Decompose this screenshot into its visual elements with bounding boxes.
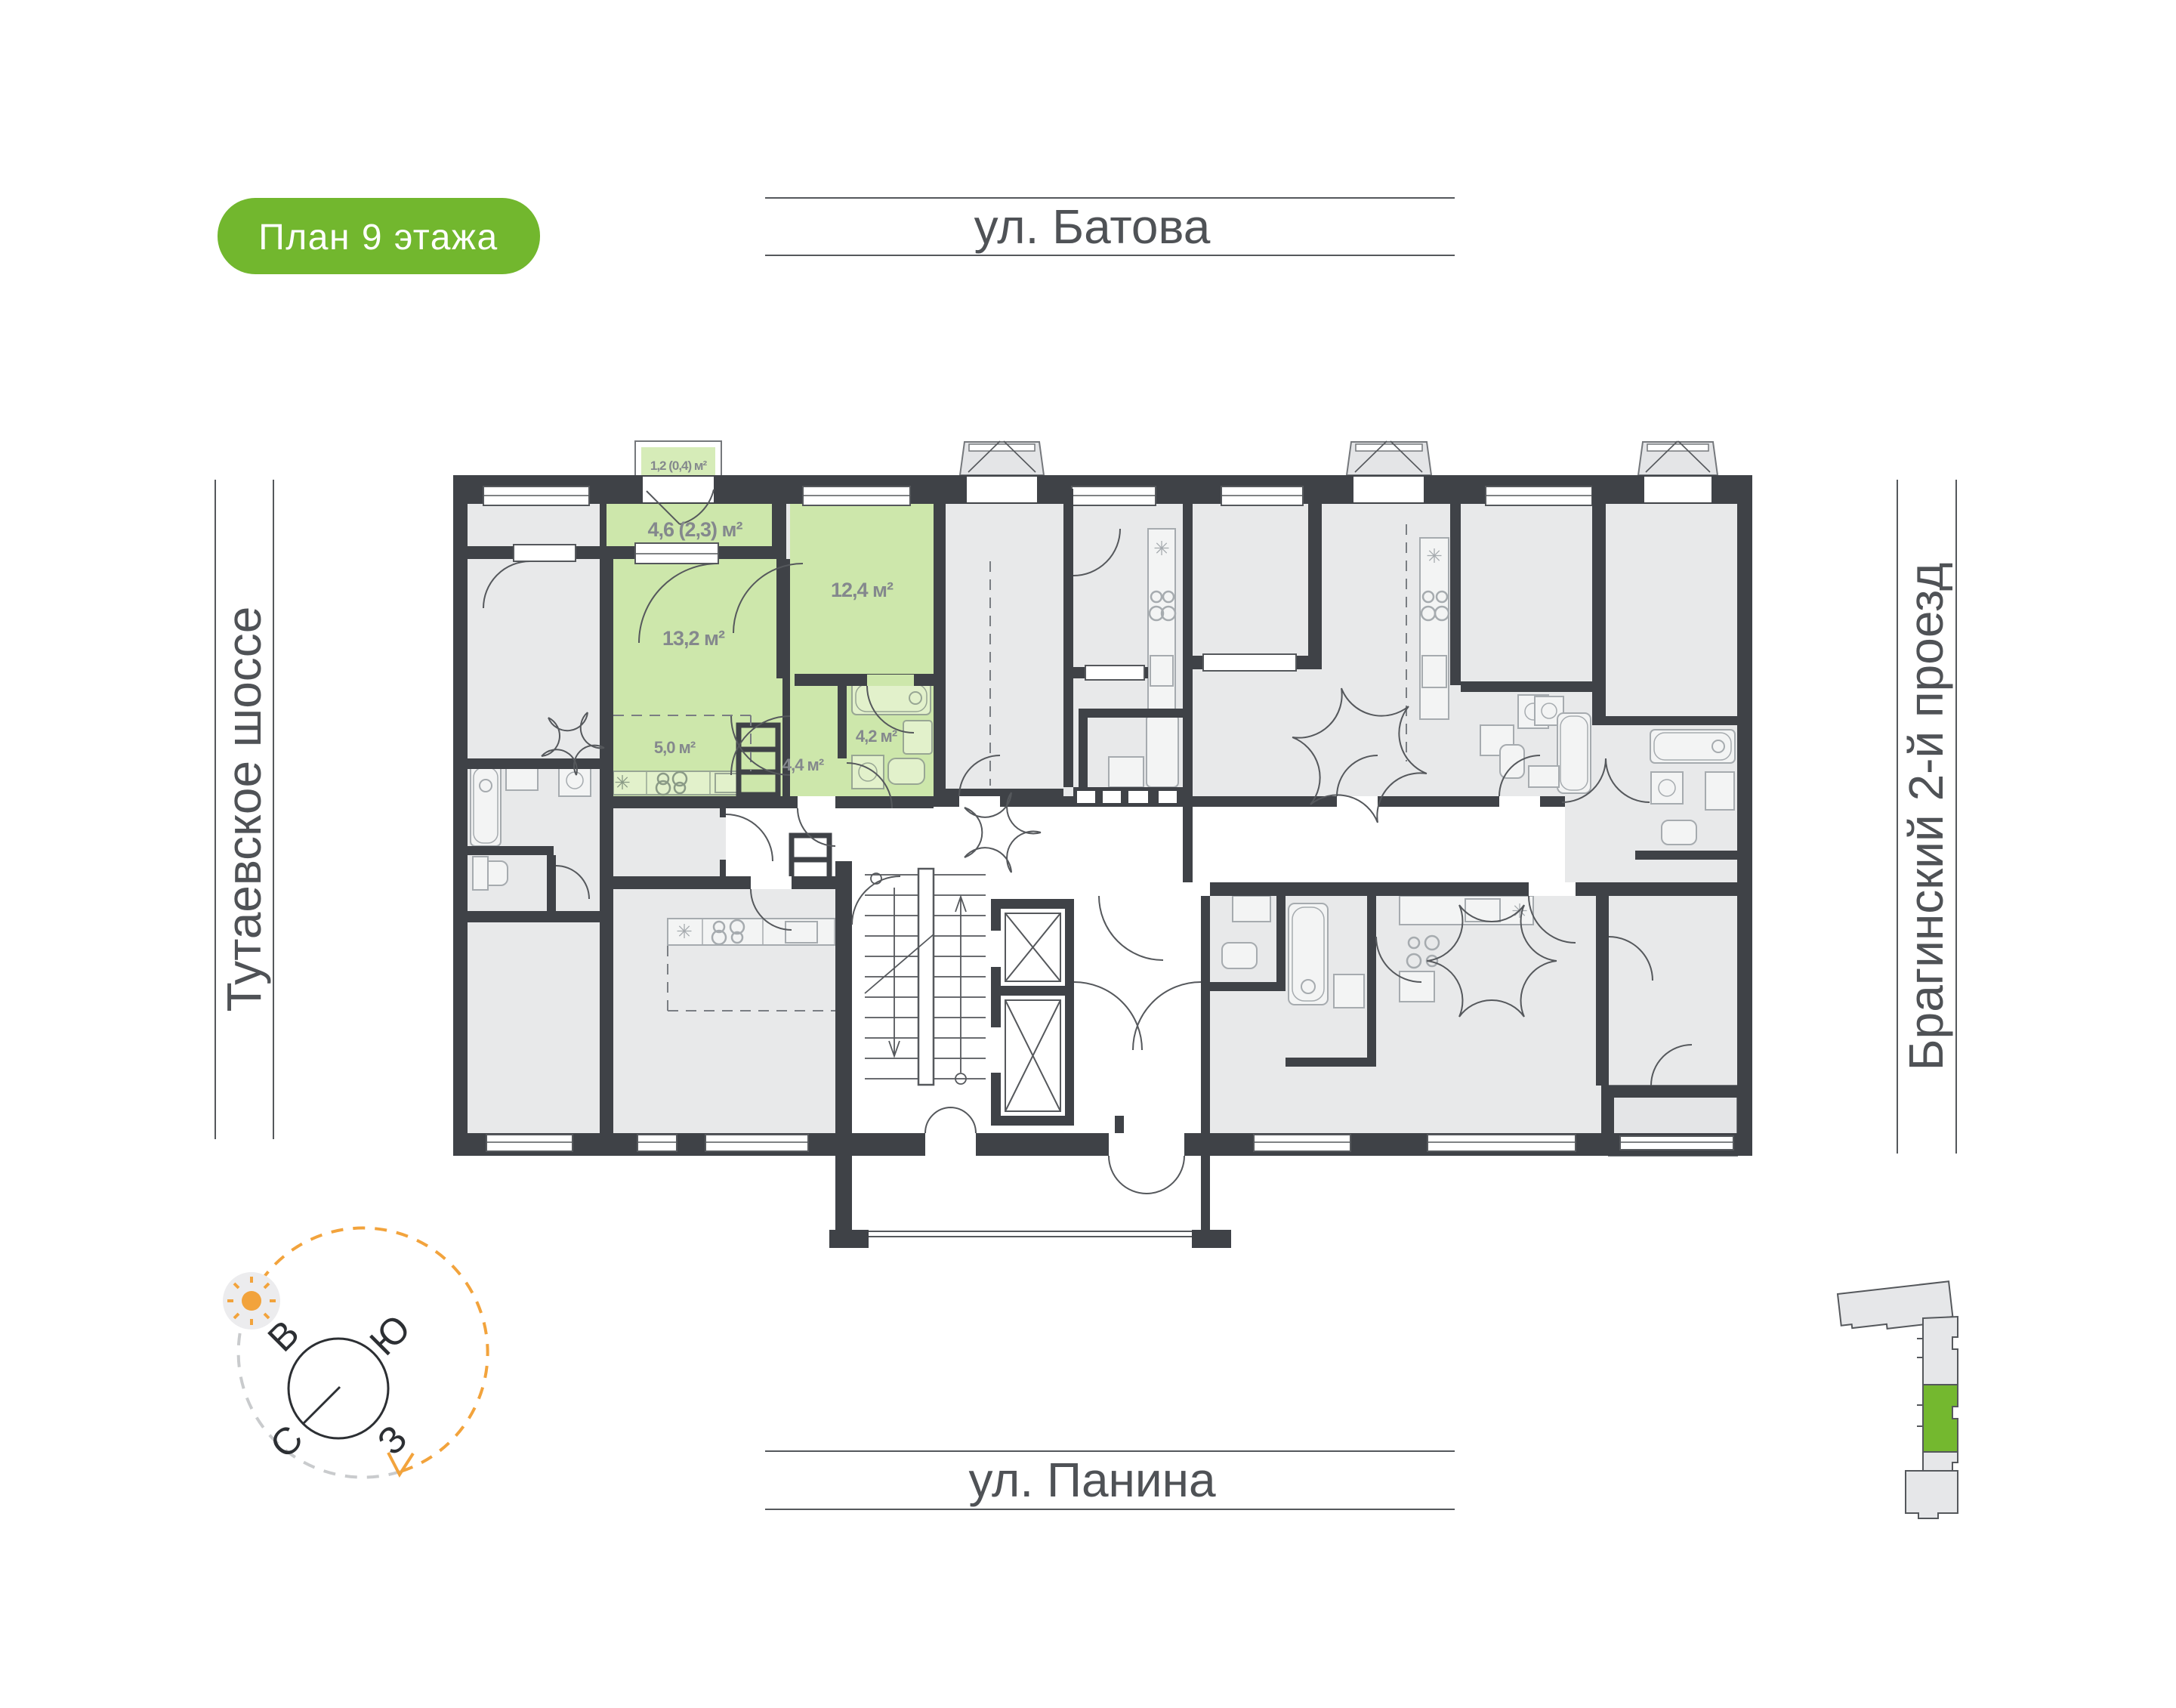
svg-text:✳: ✳ <box>1153 537 1170 560</box>
svg-text:5,0 м²: 5,0 м² <box>654 738 696 757</box>
svg-text:1,2 (0,4) м²: 1,2 (0,4) м² <box>650 459 708 473</box>
svg-text:12,4 м²: 12,4 м² <box>831 579 894 601</box>
svg-text:Брагинский 2-й проезд: Брагинский 2-й проезд <box>1899 563 1953 1071</box>
svg-text:✳: ✳ <box>1426 545 1443 567</box>
svg-text:4,2 м²: 4,2 м² <box>856 727 897 746</box>
svg-text:13,2 м²: 13,2 м² <box>662 627 725 650</box>
svg-text:✳: ✳ <box>676 920 693 943</box>
svg-text:4,6 (2,3) м²: 4,6 (2,3) м² <box>647 518 742 541</box>
svg-text:✳: ✳ <box>614 771 631 794</box>
svg-text:План 9 этажа: План 9 этажа <box>258 218 498 258</box>
svg-text:ул. Батова: ул. Батова <box>974 199 1211 254</box>
svg-text:Тутаевское шоссе: Тутаевское шоссе <box>217 607 271 1012</box>
svg-text:4,4 м²: 4,4 м² <box>782 755 824 774</box>
svg-text:ул. Панина: ул. Панина <box>968 1453 1216 1507</box>
